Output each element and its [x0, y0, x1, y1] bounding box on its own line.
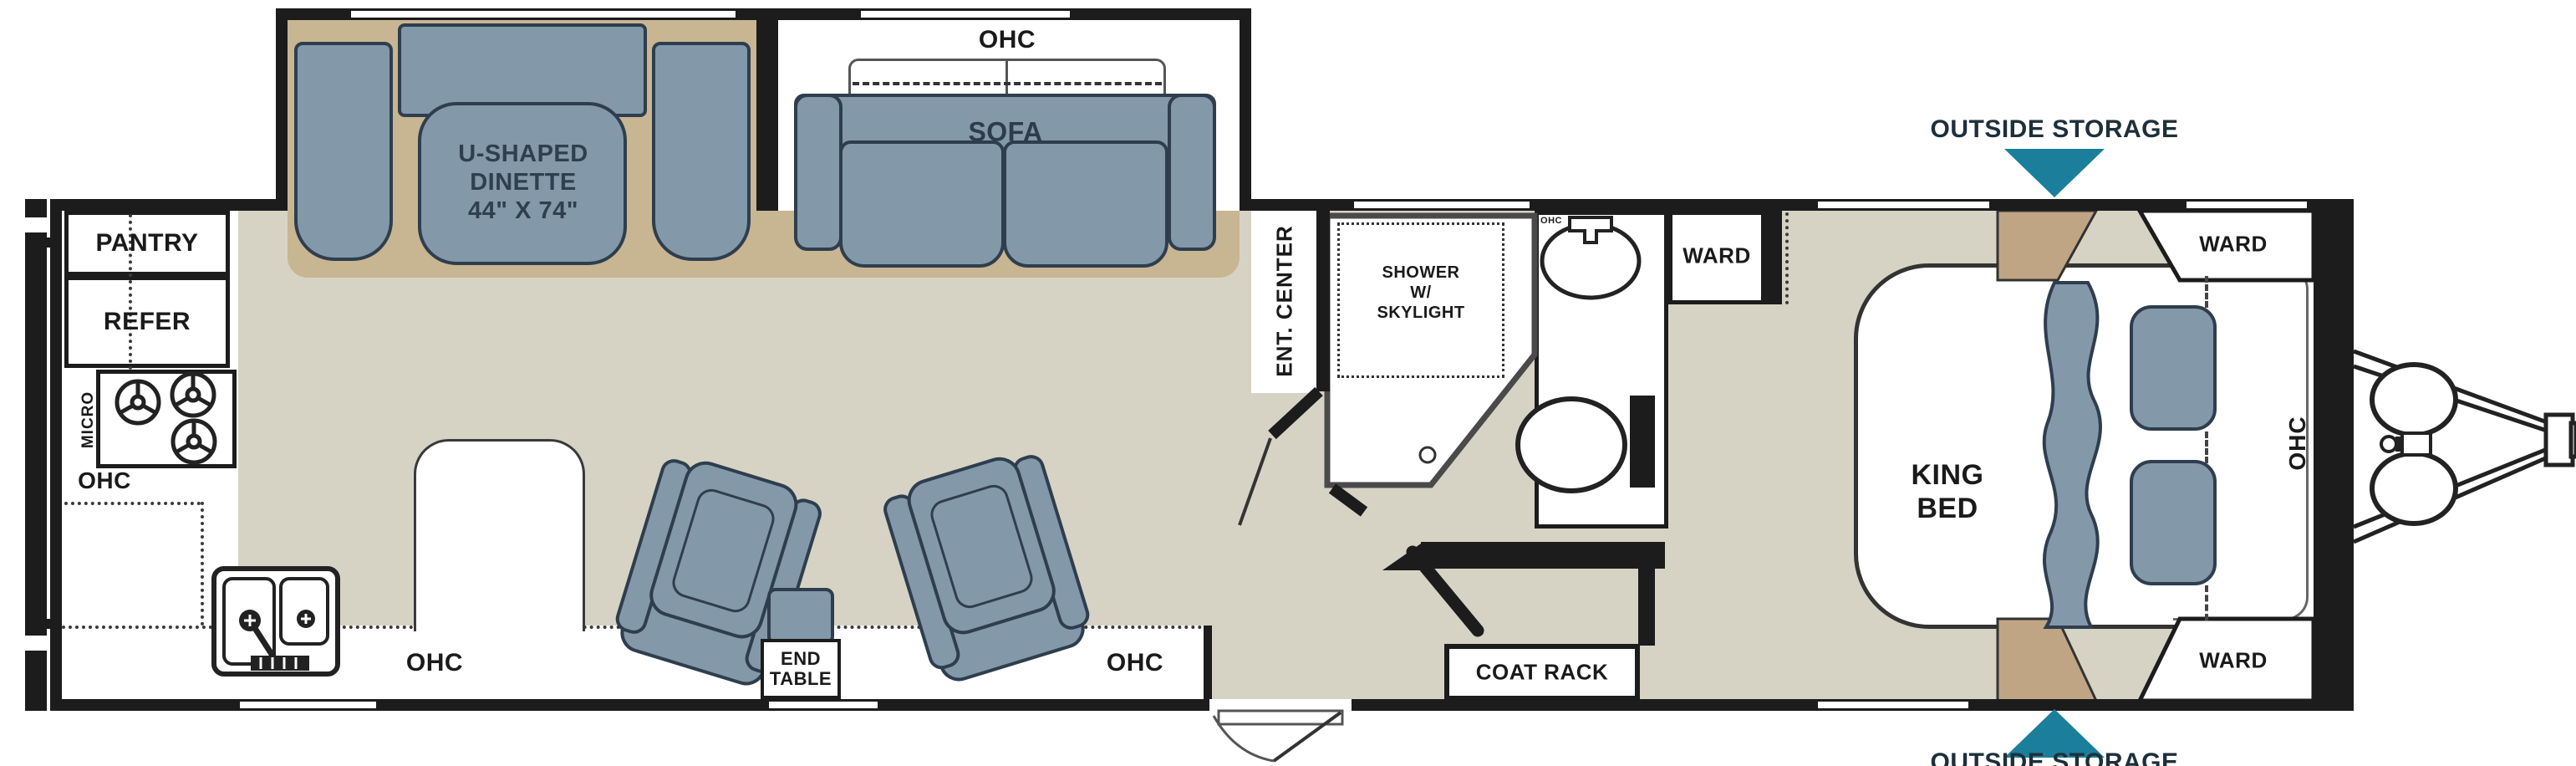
window-front-top [2187, 202, 2307, 208]
range-box [96, 370, 237, 468]
dinette-label: U-SHAPED DINETTE 44" X 74" [458, 140, 588, 225]
sofa-label: SOFA [968, 117, 1042, 148]
micro-label: MICRO [79, 391, 98, 448]
dinette-label-line3: 44" X 74" [468, 197, 578, 224]
slideout-corner-right [1240, 199, 1263, 211]
slideout-right-wall [1240, 8, 1251, 211]
sofa-arm-left [794, 94, 843, 251]
ward-front-top-label: WARD [2199, 232, 2267, 258]
king-bed-label-line2: BED [1917, 493, 1978, 524]
window-bedroom-top [1818, 202, 1989, 208]
counter-dotted-line [201, 502, 204, 626]
rear-ohc-dotted-line [64, 502, 201, 505]
window-sofa [861, 11, 1070, 18]
ent-center-label: ENT. CENTER [1272, 225, 1298, 376]
window-bedroom-bottom [1818, 702, 1968, 708]
sofa-cushion-right [1003, 140, 1168, 268]
sofa-dashed-line [853, 82, 1162, 85]
dinette-label-line2: DINETTE [470, 169, 577, 196]
ward-bath-label: WARD [1683, 243, 1750, 269]
rear-bumper-notch-bottom [25, 636, 47, 651]
window-kitchen-bottom [240, 702, 376, 708]
left-wall [50, 199, 62, 711]
right-wall [2314, 199, 2354, 711]
end-table-label: END TABLE [770, 649, 832, 689]
bed-dashed-line-1 [2205, 276, 2208, 308]
coatrack-side-wall [1638, 567, 1655, 646]
sofa-arm-right [1168, 94, 1216, 251]
bath-bedroom-wall [1765, 199, 1782, 304]
bed-dashed-line-3 [2205, 585, 2208, 620]
toilet-wall-vertical [1630, 396, 1655, 488]
kitchen-peninsula-counter [414, 439, 585, 631]
sofa-cushion-left [839, 140, 1005, 268]
king-bed-label-line1: KING [1912, 459, 1984, 491]
slideout-corner-left [264, 199, 288, 211]
ohc-sofa-label: OHC [979, 26, 1036, 54]
outside-storage-bottom-label: OUTSIDE STORAGE [1931, 748, 2179, 766]
window-bath [1354, 202, 1530, 208]
bottom-wall-left-segment [50, 699, 1209, 711]
dinette-bench-right [652, 42, 751, 261]
rear-bumper [25, 199, 47, 711]
end-table-label-line1: END [781, 648, 821, 669]
slideout-divider-wall [756, 8, 778, 211]
bed-pillow-bottom [2130, 460, 2217, 585]
ohc-bedroom-label: OHC [2284, 416, 2311, 470]
shower-label-line3: SKYLIGHT [1377, 304, 1464, 322]
entry-door [1214, 711, 1342, 761]
ohc-rear-label: OHC [78, 467, 131, 494]
king-bed-label: KING BED [1912, 458, 1984, 525]
shower-label: SHOWER W/ SKYLIGHT [1377, 263, 1464, 323]
top-wall-rear-segment [50, 199, 288, 211]
bed-dashed-line-2 [2205, 432, 2208, 463]
hitch-a-frame [2354, 351, 2576, 542]
dinette-bench-left [294, 42, 393, 261]
shower-label-line2: W/ [1410, 283, 1431, 302]
ohc-livingroom-label: OHC [1107, 649, 1163, 677]
refer-label: REFER [104, 308, 191, 336]
ward-front-bottom-label: WARD [2199, 648, 2267, 674]
propane-tanks [2372, 365, 2456, 523]
counter-end-divider-wall [1204, 626, 1212, 699]
ohc-kitchen-label: OHC [406, 649, 463, 677]
end-table-top [767, 588, 834, 645]
end-table-label-line2: TABLE [770, 668, 832, 689]
outside-storage-top-arrow [2004, 149, 2105, 197]
outside-storage-top-label: OUTSIDE STORAGE [1931, 115, 2179, 144]
pantry-label: PANTRY [96, 229, 199, 258]
shower-label-line1: SHOWER [1382, 263, 1460, 282]
toilet-wall-horizontal [1421, 542, 1665, 569]
window-living-bottom [769, 702, 878, 708]
bedroom-entry-dotted-line [1785, 212, 1789, 304]
floorplan: PANTRY REFER MICRO OHC OHC OHC U-SHAPED … [0, 0, 2576, 766]
bed-pillow-top [2130, 305, 2217, 431]
ohc-bath-tiny-label: OHC [1540, 216, 1562, 226]
window-dinette [351, 11, 736, 18]
rear-bumper-notch-top [25, 217, 47, 232]
slideout-left-wall [276, 8, 288, 211]
coat-rack-label: COAT RACK [1476, 660, 1609, 686]
ent-center-wall [1316, 211, 1330, 391]
dinette-label-line1: U-SHAPED [458, 140, 588, 167]
